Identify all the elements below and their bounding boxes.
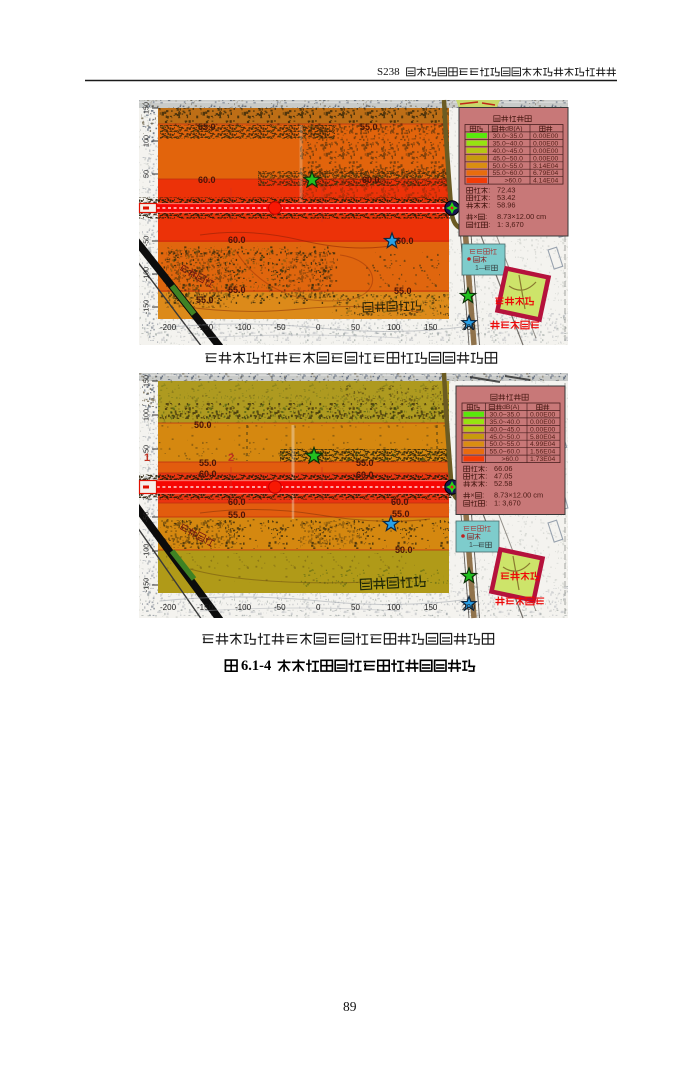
svg-text:60.0: 60.0 <box>391 497 409 507</box>
svg-text:-50: -50 <box>141 236 150 246</box>
svg-text:60.0: 60.0 <box>228 235 246 245</box>
svg-text:4.14E04: 4.14E04 <box>533 178 559 185</box>
svg-text::: : <box>485 212 487 221</box>
svg-text:-150: -150 <box>197 603 214 612</box>
svg-text:-100: -100 <box>235 603 252 612</box>
svg-text:0.00E00: 0.00E00 <box>533 140 559 147</box>
svg-text::: : <box>485 499 487 508</box>
svg-text:55.0: 55.0 <box>198 122 216 132</box>
svg-text:50: 50 <box>141 170 150 178</box>
svg-text:30.0~35.0: 30.0~35.0 <box>490 411 521 418</box>
svg-text:50.0~55.0: 50.0~55.0 <box>490 441 521 448</box>
svg-text:60.0: 60.0 <box>199 469 217 479</box>
svg-text:-200: -200 <box>160 603 177 612</box>
svg-text:3.14E04: 3.14E04 <box>533 163 559 170</box>
svg-text::: : <box>485 479 487 488</box>
svg-text:1: 3,670: 1: 3,670 <box>497 220 524 229</box>
svg-text:-150: -150 <box>141 300 150 314</box>
svg-text:1.73E04: 1.73E04 <box>530 456 556 463</box>
svg-text:6.79E04: 6.79E04 <box>533 170 559 177</box>
svg-text:55.0: 55.0 <box>228 285 246 295</box>
svg-text:60.0: 60.0 <box>396 236 414 246</box>
svg-text:-200: -200 <box>160 323 177 332</box>
svg-text:0.00E00: 0.00E00 <box>533 148 559 155</box>
svg-text:55.0: 55.0 <box>228 510 246 520</box>
svg-text:-150: -150 <box>197 323 214 332</box>
svg-text:55.0: 55.0 <box>360 122 378 132</box>
svg-text:55.0~60.0: 55.0~60.0 <box>490 449 521 456</box>
svg-text:0.00E00: 0.00E00 <box>530 411 556 418</box>
svg-text:60.0: 60.0 <box>198 175 216 185</box>
svg-text:150: 150 <box>424 323 438 332</box>
svg-text::: : <box>488 201 490 210</box>
svg-text:35.0~40.0: 35.0~40.0 <box>493 140 524 147</box>
svg-text:-100: -100 <box>141 544 150 558</box>
svg-text:45.0~50.0: 45.0~50.0 <box>493 155 524 162</box>
svg-text:0.00E00: 0.00E00 <box>533 133 559 140</box>
svg-text:1—: 1— <box>475 265 486 272</box>
svg-text:1: 1 <box>144 452 150 464</box>
svg-text:55.0: 55.0 <box>392 509 410 519</box>
svg-text:1: 3,670: 1: 3,670 <box>494 499 521 508</box>
svg-text:100: 100 <box>387 603 401 612</box>
svg-text:dB(A): dB(A) <box>505 126 522 133</box>
svg-text:0.00E00: 0.00E00 <box>533 155 559 162</box>
svg-text:35.0~40.0: 35.0~40.0 <box>490 419 521 426</box>
svg-text:-150: -150 <box>141 578 150 592</box>
svg-text:150: 150 <box>141 102 150 114</box>
svg-text:0: 0 <box>316 323 321 332</box>
svg-text:S238: S238 <box>377 66 400 78</box>
svg-text:50.0: 50.0 <box>194 420 212 430</box>
svg-text:58.96: 58.96 <box>497 201 516 210</box>
svg-text:50: 50 <box>351 323 360 332</box>
svg-text:>60.0: >60.0 <box>505 178 522 185</box>
svg-text:150: 150 <box>141 375 150 387</box>
svg-text:×: × <box>470 491 474 500</box>
svg-text:55.0: 55.0 <box>199 458 217 468</box>
svg-text:-50: -50 <box>141 512 150 522</box>
svg-text:0.00E00: 0.00E00 <box>530 419 556 426</box>
svg-text:100: 100 <box>141 409 150 421</box>
svg-text:40.0~45.0: 40.0~45.0 <box>490 426 521 433</box>
svg-text:30.0~35.0: 30.0~35.0 <box>493 133 524 140</box>
svg-text:0.00E00: 0.00E00 <box>530 426 556 433</box>
svg-text:>60.0: >60.0 <box>502 456 519 463</box>
svg-text:100: 100 <box>141 135 150 147</box>
svg-text:1.56E04: 1.56E04 <box>530 449 556 456</box>
svg-text:2: 2 <box>228 452 234 464</box>
svg-text:55.0: 55.0 <box>394 286 412 296</box>
svg-text:-100: -100 <box>141 267 150 281</box>
svg-text:5.80E04: 5.80E04 <box>530 434 556 441</box>
svg-text::: : <box>488 220 490 229</box>
svg-text:1—: 1— <box>469 542 480 549</box>
svg-text:200: 200 <box>462 323 476 332</box>
svg-text:200: 200 <box>462 603 476 612</box>
svg-text::: : <box>482 491 484 500</box>
svg-text:6.1-4: 6.1-4 <box>241 658 271 674</box>
svg-text:-50: -50 <box>274 603 286 612</box>
svg-text:-50: -50 <box>274 323 286 332</box>
svg-text:40.0~45.0: 40.0~45.0 <box>493 148 524 155</box>
svg-text:55.0: 55.0 <box>356 458 374 468</box>
svg-text:150: 150 <box>424 603 438 612</box>
svg-text:55.0~60.0: 55.0~60.0 <box>493 170 524 177</box>
svg-text:dB(A): dB(A) <box>502 404 519 411</box>
svg-text:50.0: 50.0 <box>395 545 413 555</box>
svg-text:52.58: 52.58 <box>494 479 513 488</box>
svg-text:×: × <box>473 212 477 221</box>
svg-text:55.0: 55.0 <box>196 295 214 305</box>
svg-text:0: 0 <box>316 603 321 612</box>
svg-text:45.0~50.0: 45.0~50.0 <box>490 434 521 441</box>
svg-text:60.0: 60.0 <box>356 470 374 480</box>
svg-text:100: 100 <box>387 323 401 332</box>
svg-text:-100: -100 <box>235 323 252 332</box>
svg-text:89: 89 <box>343 999 357 1014</box>
svg-text:60.0: 60.0 <box>362 175 380 185</box>
svg-text:4.99E04: 4.99E04 <box>530 441 556 448</box>
svg-text:50.0~55.0: 50.0~55.0 <box>493 163 524 170</box>
svg-text:50: 50 <box>351 603 360 612</box>
